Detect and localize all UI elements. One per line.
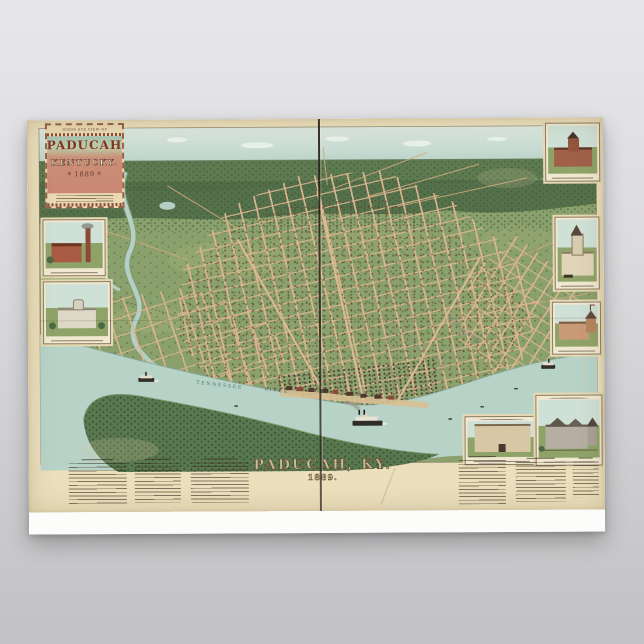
inset-college bbox=[545, 123, 600, 182]
map-bottom-title: PADUCAH, KY. 1889. bbox=[243, 458, 403, 483]
inset-caption-arc bbox=[548, 397, 590, 398]
legend-schools-column bbox=[516, 462, 566, 502]
cartouche-state-title: KENTUCKY. bbox=[51, 158, 118, 167]
mansion-turret bbox=[588, 427, 597, 446]
tree bbox=[539, 446, 545, 452]
inset-caption bbox=[561, 285, 595, 286]
courthouse-building bbox=[58, 308, 96, 328]
college-tower bbox=[568, 139, 579, 152]
inset-waterworks bbox=[42, 219, 105, 276]
inset-waterworks-scene bbox=[45, 222, 102, 268]
city-hall-tower bbox=[572, 234, 584, 256]
cartouche-ornament-border-bottom bbox=[47, 203, 122, 206]
inset-college-scene bbox=[548, 126, 597, 174]
legend-index-column bbox=[573, 462, 599, 498]
poster-bottom-margin bbox=[29, 509, 605, 534]
inset-business-block bbox=[552, 302, 601, 355]
turret-cone bbox=[586, 418, 598, 427]
flag bbox=[591, 305, 595, 306]
inset-courthouse bbox=[43, 281, 111, 344]
cartouche-year: ✻ 1889 ✻ bbox=[67, 170, 102, 178]
inset-caption bbox=[552, 177, 593, 178]
inset-caption-arc bbox=[478, 418, 524, 419]
bottom-title-year: 1889. bbox=[243, 473, 403, 483]
inset-caption bbox=[558, 350, 595, 351]
inset-business-block-scene bbox=[555, 305, 598, 347]
mansion-gable bbox=[547, 418, 567, 427]
cartouche-year-text: 1889 bbox=[74, 170, 95, 178]
legend-references-column-2 bbox=[135, 463, 181, 503]
cartouche-kicker-text: BIRDS EYE VIEW OF bbox=[62, 127, 107, 131]
hotel-entrance bbox=[499, 444, 506, 452]
waterworks-chimney bbox=[85, 228, 90, 262]
tree bbox=[47, 256, 54, 263]
legend-churches-column bbox=[459, 460, 506, 504]
star-ornament: ✻ bbox=[97, 171, 102, 177]
inset-mansion bbox=[535, 395, 602, 466]
mansion-gable bbox=[566, 419, 584, 427]
business-building bbox=[559, 322, 589, 340]
tower-roof bbox=[567, 132, 579, 139]
tree bbox=[98, 322, 105, 329]
inset-hotel-scene bbox=[468, 421, 536, 457]
cartouche-panel: PADUCAH KENTUCKY. ✻ 1889 ✻ bbox=[47, 136, 122, 193]
corner-tower bbox=[586, 319, 596, 333]
inset-caption bbox=[50, 272, 98, 273]
title-cartouche: BIRDS EYE VIEW OF PADUCAH KENTUCKY. ✻ 18… bbox=[45, 123, 124, 208]
inset-caption bbox=[51, 340, 102, 341]
inset-courthouse-scene bbox=[46, 284, 108, 336]
star-ornament: ✻ bbox=[67, 171, 72, 177]
tower-spire bbox=[570, 225, 582, 236]
chimney-smoke bbox=[81, 223, 93, 229]
inset-city-hall-scene bbox=[557, 220, 596, 282]
inset-mansion-scene bbox=[538, 400, 599, 458]
mansion-building bbox=[546, 425, 588, 449]
courthouse-cupola bbox=[73, 299, 84, 310]
inset-city-hall bbox=[554, 217, 599, 290]
horse-wagon bbox=[564, 275, 573, 278]
lawn-fence bbox=[541, 450, 598, 451]
map-poster: TENNESSEE RIVER BIRDS EYE VIEW OF bbox=[27, 117, 605, 534]
tree bbox=[49, 322, 56, 329]
product-photo-background: TENNESSEE RIVER BIRDS EYE VIEW OF bbox=[0, 0, 644, 644]
cartouche-city-title: PADUCAH bbox=[47, 139, 123, 152]
legend-references-column-1 bbox=[69, 463, 127, 505]
waterworks-building bbox=[52, 243, 82, 262]
publisher-imprint-lines bbox=[56, 195, 113, 202]
main-avenues bbox=[237, 190, 480, 405]
map-paper: TENNESSEE RIVER BIRDS EYE VIEW OF bbox=[27, 117, 605, 512]
legend-references-column-3 bbox=[191, 462, 249, 502]
